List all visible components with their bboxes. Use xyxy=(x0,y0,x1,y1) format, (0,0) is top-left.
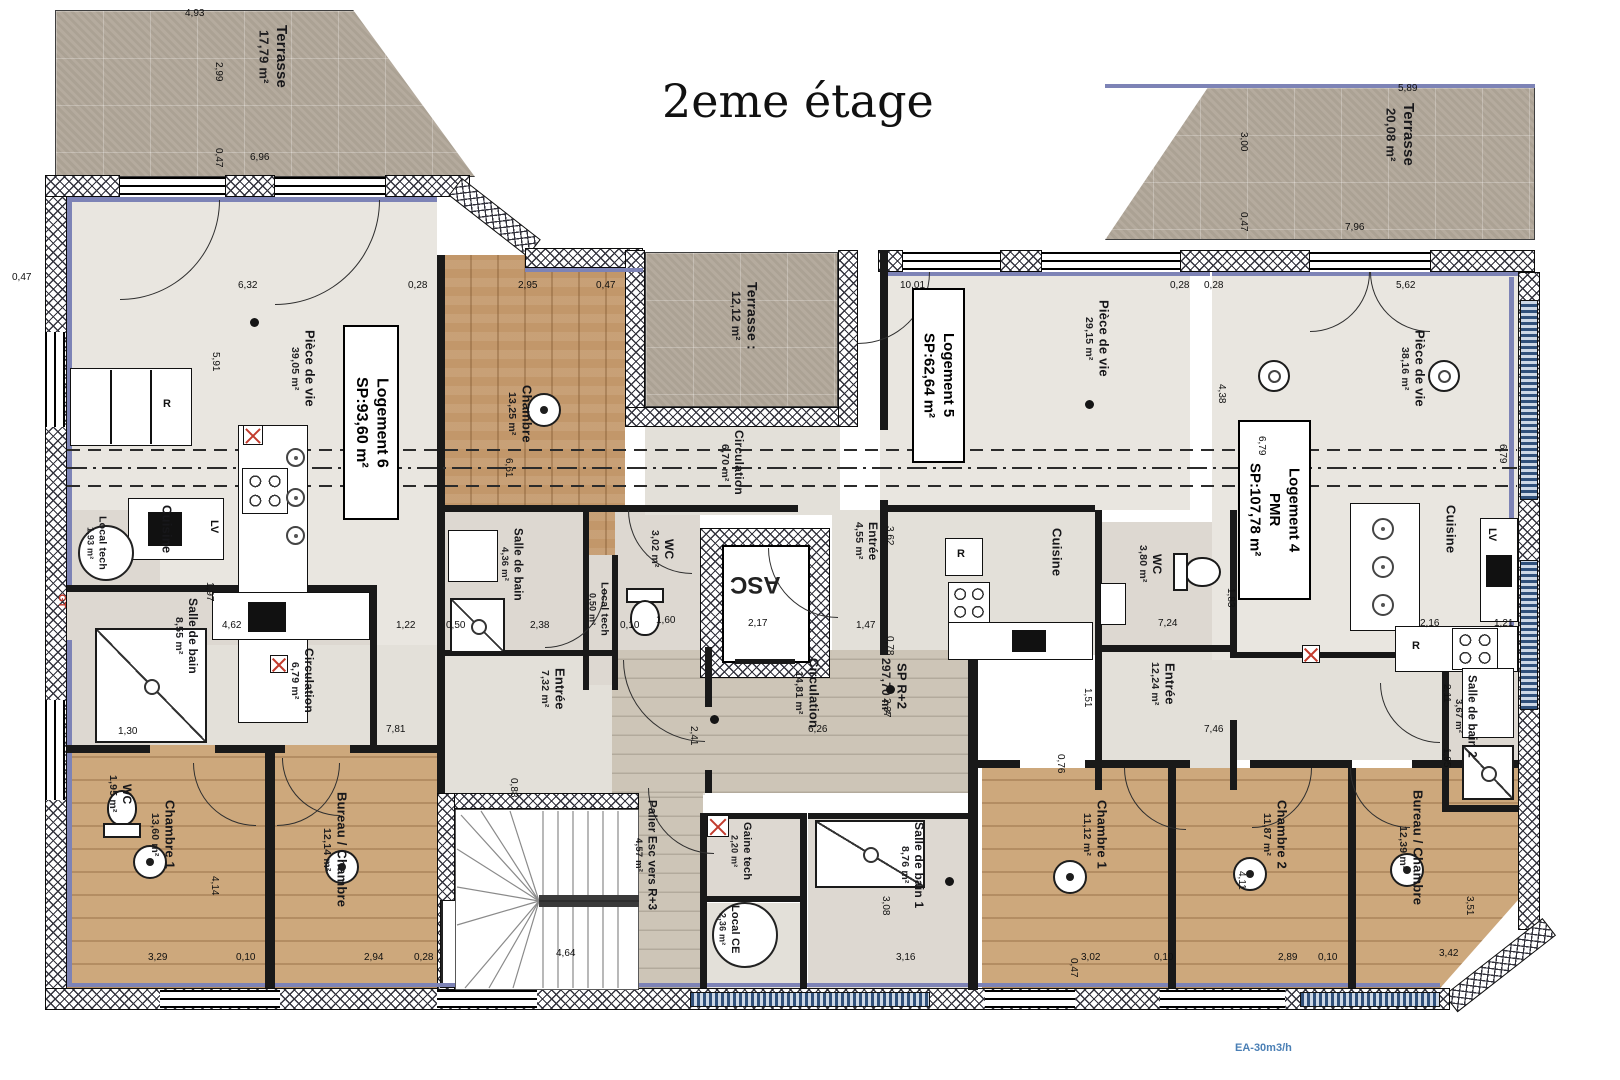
balustrade xyxy=(1105,84,1535,88)
dim-label: 1,47 xyxy=(856,620,875,631)
burner-icon xyxy=(1372,556,1394,578)
dim-label: 6,61 xyxy=(503,458,514,477)
dim-label: 3,42 xyxy=(1439,948,1458,959)
partition xyxy=(1250,760,1352,768)
wall-terrace-mid-bottom xyxy=(625,407,858,427)
partition xyxy=(437,255,445,650)
dim-label: 0,50 xyxy=(446,620,465,631)
partition xyxy=(880,505,1095,512)
room-label: Bureau / Chambre 12,14 m² xyxy=(320,792,349,907)
room-label: Entrée7,32 m² xyxy=(538,668,567,710)
dim-label: 3,02 xyxy=(1081,952,1100,963)
toilet-icon xyxy=(1185,555,1221,605)
fridge-label: R xyxy=(957,548,965,560)
dim-label: 0,10 xyxy=(1154,952,1173,963)
wall-terrace-mid-right xyxy=(838,250,858,427)
dim-label: 3,51 xyxy=(1464,896,1475,915)
ceiling-light-icon xyxy=(1258,360,1290,392)
dim-label: 3,62 xyxy=(884,526,895,545)
dim-label: 1,97 xyxy=(204,582,215,601)
floor-plan: R LV R LV R xyxy=(0,0,1620,1080)
window-l5-1 xyxy=(903,252,1000,270)
burner-icon xyxy=(286,526,305,545)
room-label: Local CE2,36 m² xyxy=(716,905,741,954)
room-label: Entrée12,24 m² xyxy=(1148,662,1177,706)
room-label: WC3,80 m² xyxy=(1136,545,1164,583)
dishwasher-label: LV xyxy=(208,520,220,533)
fridge-label: R xyxy=(1412,640,1420,652)
sink-icon xyxy=(248,602,286,632)
partition xyxy=(67,745,150,753)
partition xyxy=(612,555,618,690)
dim-label: 4,11 xyxy=(1236,871,1247,890)
partition xyxy=(968,650,978,990)
sink-cabinet xyxy=(1100,583,1126,625)
terrace-label: Terrasse : 12,12 m² xyxy=(728,282,761,350)
window-nw-1 xyxy=(120,177,225,195)
dim-label: 1,51 xyxy=(1082,688,1093,707)
vent-south-1 xyxy=(690,992,930,1007)
dim-label: 5,91 xyxy=(210,352,221,371)
room-label: Gaine tech2,20 m² xyxy=(728,822,753,880)
wall-line-8 xyxy=(67,640,72,983)
wall-top-l5-c xyxy=(1180,250,1310,272)
dim-label: 1,83 xyxy=(1225,588,1236,607)
room-label: Salle de bain4,36 m² xyxy=(498,528,524,601)
room-label: Pièce de vie38,16 m² xyxy=(1398,330,1427,407)
dim-label: 2,38 xyxy=(530,620,549,631)
light-dot xyxy=(250,318,259,327)
partition xyxy=(67,585,370,592)
partition xyxy=(800,813,807,988)
partition xyxy=(705,647,712,707)
vanity xyxy=(212,592,370,640)
room-label: WC1,95 m² xyxy=(106,775,134,813)
dim-label: 0,28 xyxy=(414,952,433,963)
dim-label: 2,37 xyxy=(881,698,892,717)
sink-icon xyxy=(1486,555,1512,587)
room-label: Cuisine xyxy=(1442,505,1458,553)
dim-label: 2,94 xyxy=(364,952,383,963)
window-south-2 xyxy=(985,990,1075,1008)
dim-label: 7,24 xyxy=(1158,618,1177,629)
room-label: Local tech1,93 m² xyxy=(84,516,108,570)
partition xyxy=(707,896,800,902)
vent-note: EA-30m3/h xyxy=(1235,1042,1292,1054)
duct-cross-icon xyxy=(1302,645,1320,663)
window-l5-2 xyxy=(1042,252,1180,270)
ceiling-light-icon xyxy=(1428,360,1460,392)
glazing-east-1 xyxy=(1520,300,1538,500)
stove-icon xyxy=(1452,628,1498,670)
dim-label: 0,10 xyxy=(236,952,255,963)
stove-icon xyxy=(948,582,990,624)
dim-label: 1,60 xyxy=(656,615,675,626)
dim-label: 2,41 xyxy=(688,726,699,745)
window-west-2 xyxy=(45,700,65,800)
window-nw-2 xyxy=(275,177,385,195)
stove-icon xyxy=(242,468,288,514)
wall-top-l5-b xyxy=(1000,250,1042,272)
window-south-3 xyxy=(1160,990,1285,1008)
partition xyxy=(1230,720,1237,790)
counter-divider xyxy=(150,370,152,444)
dim-label: 0,47 xyxy=(1068,958,1079,977)
dim-label: 5,89 xyxy=(1398,83,1417,94)
partition xyxy=(1348,768,1356,988)
logement-4-label: Logement 4 PMR SP:107,78 m² xyxy=(1238,420,1311,600)
counter-divider xyxy=(110,370,112,444)
dim-label: 0,88 xyxy=(508,778,519,797)
dim-label: 6,79 xyxy=(1497,444,1508,463)
dim-label: 5,62 xyxy=(1396,280,1415,291)
dim-label: 2,95 xyxy=(518,280,537,291)
room-label: Palier Esc vers R+34,57 m² xyxy=(632,800,658,910)
window-south-1 xyxy=(160,990,280,1008)
dim-label: 1,30 xyxy=(118,726,137,737)
light-dot xyxy=(710,715,719,724)
dim-label: 3,16 xyxy=(896,952,915,963)
dim-label: 2,89 xyxy=(1278,952,1297,963)
partition xyxy=(370,585,377,750)
dim-label: 0,28 xyxy=(1204,280,1223,291)
dim-label: 0,47 xyxy=(596,280,615,291)
sink-icon xyxy=(1012,630,1046,652)
dim-label: 0,28 xyxy=(408,280,427,291)
room-label: Entrée4,55 m² xyxy=(852,522,880,561)
partition xyxy=(1230,510,1237,655)
dim-label: 1,21 xyxy=(1494,618,1513,629)
room-label: Salle de bain 23,67 m² xyxy=(1452,675,1478,758)
terrace-top-right xyxy=(1105,87,1535,240)
door-terrace-l4 xyxy=(1310,252,1430,270)
burner-icon xyxy=(286,448,305,467)
room-label: Local tech0,50 m² xyxy=(586,582,610,636)
dim-label: 10,01 xyxy=(900,280,925,291)
dim-label: 0,78 xyxy=(884,636,895,655)
partition xyxy=(443,505,798,512)
kitchen-counter xyxy=(70,368,192,446)
burner-icon xyxy=(1372,518,1394,540)
dim-label: 2,99 xyxy=(213,62,224,81)
dim-label: 2,17 xyxy=(748,618,767,629)
room-label: Circulation14,81 m² xyxy=(792,658,821,728)
dim-label: 7,46 xyxy=(1204,724,1223,735)
dim-label: 3,29 xyxy=(148,952,167,963)
room-label: Cuisine xyxy=(158,505,174,553)
wall-line-3 xyxy=(525,268,643,272)
dim-label: 6,32 xyxy=(238,280,257,291)
dim-label: 4,64 xyxy=(556,948,575,959)
partition xyxy=(437,650,445,793)
light-dot xyxy=(1085,400,1094,409)
vent-south-2 xyxy=(1300,992,1440,1007)
logement-5-label: Logement 5 SP:62,64 m² xyxy=(912,288,965,463)
partition xyxy=(1095,645,1230,652)
room-label: Pièce de vie29,15 m² xyxy=(1082,300,1111,377)
dim-label: 6,79 xyxy=(1256,436,1267,455)
fridge-label: R xyxy=(163,398,171,410)
duct-cross-icon xyxy=(270,655,288,673)
dim-label: 6,26 xyxy=(808,724,827,735)
dishwasher-label: LV xyxy=(1486,528,1498,541)
wall-diagonal-nw xyxy=(448,178,540,257)
dim-label: 0,28 xyxy=(1170,280,1189,291)
partition xyxy=(1442,805,1518,812)
dim-label: 0,47 xyxy=(12,272,31,283)
logement-6-label: Logement 6 SP:93,60 m² xyxy=(343,325,399,520)
partition xyxy=(1442,650,1449,810)
light-dot xyxy=(945,877,954,886)
dim-label: 3,08 xyxy=(880,896,891,915)
dim-label: 0,10 xyxy=(620,620,639,631)
dim-label: 4,38 xyxy=(1216,384,1227,403)
dim-label: 4,14 xyxy=(209,876,220,895)
window-south-stairs xyxy=(437,990,537,1008)
room-label: Chambre 211,87 m² xyxy=(1260,800,1289,869)
sink-cabinet xyxy=(448,530,498,582)
wall-stairs-top xyxy=(437,793,639,809)
partition xyxy=(350,745,437,753)
terrace-label: Terrasse 17,79 m² xyxy=(255,25,290,88)
wall-top-a xyxy=(45,175,120,197)
room-label: Chambre13,25 m² xyxy=(505,385,534,443)
glazing-east-2 xyxy=(1520,560,1538,710)
room-label: Salle de bain8,55 m² xyxy=(172,598,200,674)
dim-label: 2,11 xyxy=(1441,684,1452,703)
dim-label: 6,96 xyxy=(250,152,269,163)
window-west-1 xyxy=(45,332,65,427)
page-title: 2eme étage xyxy=(662,78,934,124)
dim-label: 0,10 xyxy=(1318,952,1337,963)
partition xyxy=(808,813,968,819)
room-label: Circulation6,70 m² xyxy=(718,430,746,495)
elevator-label: ASC xyxy=(730,570,781,598)
dim-label: 1,22 xyxy=(396,620,415,631)
elevator-door xyxy=(735,659,795,664)
dim-label: 3,00 xyxy=(1238,132,1249,151)
wall-left xyxy=(45,175,67,1010)
dim-label: 1,95 xyxy=(1441,748,1452,767)
room-label: Pièce de vie39,05 m² xyxy=(288,330,317,407)
duct-label: GT xyxy=(56,594,67,608)
dim-label: 4,93 xyxy=(185,8,204,19)
terrace-label: Terrasse 20,08 m² xyxy=(1382,103,1417,166)
burner-icon xyxy=(286,488,305,507)
burner-icon xyxy=(1372,594,1394,616)
wall-top-l4 xyxy=(1430,250,1535,272)
wall-top-b xyxy=(225,175,275,197)
dim-label: 2,16 xyxy=(1420,618,1439,629)
room-label: Chambre 111,12 m² xyxy=(1080,800,1109,869)
duct-cross-icon xyxy=(243,425,263,445)
dim-label: 0,76 xyxy=(1055,754,1066,773)
dim-label: 7,96 xyxy=(1345,222,1364,233)
partition xyxy=(265,745,275,988)
room-label: Circulation6,79 m² xyxy=(288,648,316,713)
room-label: WC3,02 m² xyxy=(648,530,676,568)
dim-label: 0,47 xyxy=(1238,212,1249,231)
partition xyxy=(1085,760,1190,768)
partition xyxy=(880,500,888,655)
dim-label: 7,81 xyxy=(386,724,405,735)
partition xyxy=(975,760,1020,768)
stairs xyxy=(455,809,639,990)
dim-label: 0,47 xyxy=(213,148,224,167)
room-label: Cuisine xyxy=(1048,528,1064,576)
room-label: Bureau / Chambre 12,39 m² xyxy=(1396,790,1425,905)
duct-cross-icon xyxy=(707,815,729,837)
room-label: Salle de bain 18,76 m² xyxy=(898,822,926,908)
wall-terrace-mid-left xyxy=(625,250,645,427)
room-label: Chambre 113,60 m² xyxy=(148,800,177,869)
dim-label: 4,62 xyxy=(222,620,241,631)
